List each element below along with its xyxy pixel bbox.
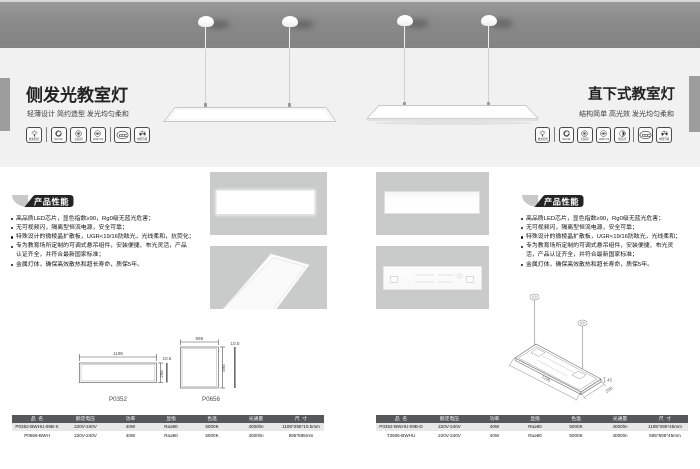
svg-text:295: 295 bbox=[159, 370, 164, 378]
svg-text:45: 45 bbox=[607, 378, 613, 383]
svg-text:CCC: CCC bbox=[642, 132, 651, 137]
svg-text:595: 595 bbox=[221, 364, 226, 372]
svg-text:595: 595 bbox=[195, 336, 203, 341]
svg-text:1195: 1195 bbox=[113, 351, 123, 356]
svg-text:P0656: P0656 bbox=[202, 396, 220, 403]
svg-text:10.5: 10.5 bbox=[163, 356, 172, 361]
svg-text:P0352: P0352 bbox=[109, 396, 127, 403]
svg-text:产品性能: 产品性能 bbox=[544, 196, 579, 206]
svg-text:10.5: 10.5 bbox=[231, 341, 240, 346]
svg-text:CCC: CCC bbox=[119, 132, 128, 137]
svg-text:产品性能: 产品性能 bbox=[34, 196, 69, 206]
svg-text:295: 295 bbox=[605, 385, 615, 394]
